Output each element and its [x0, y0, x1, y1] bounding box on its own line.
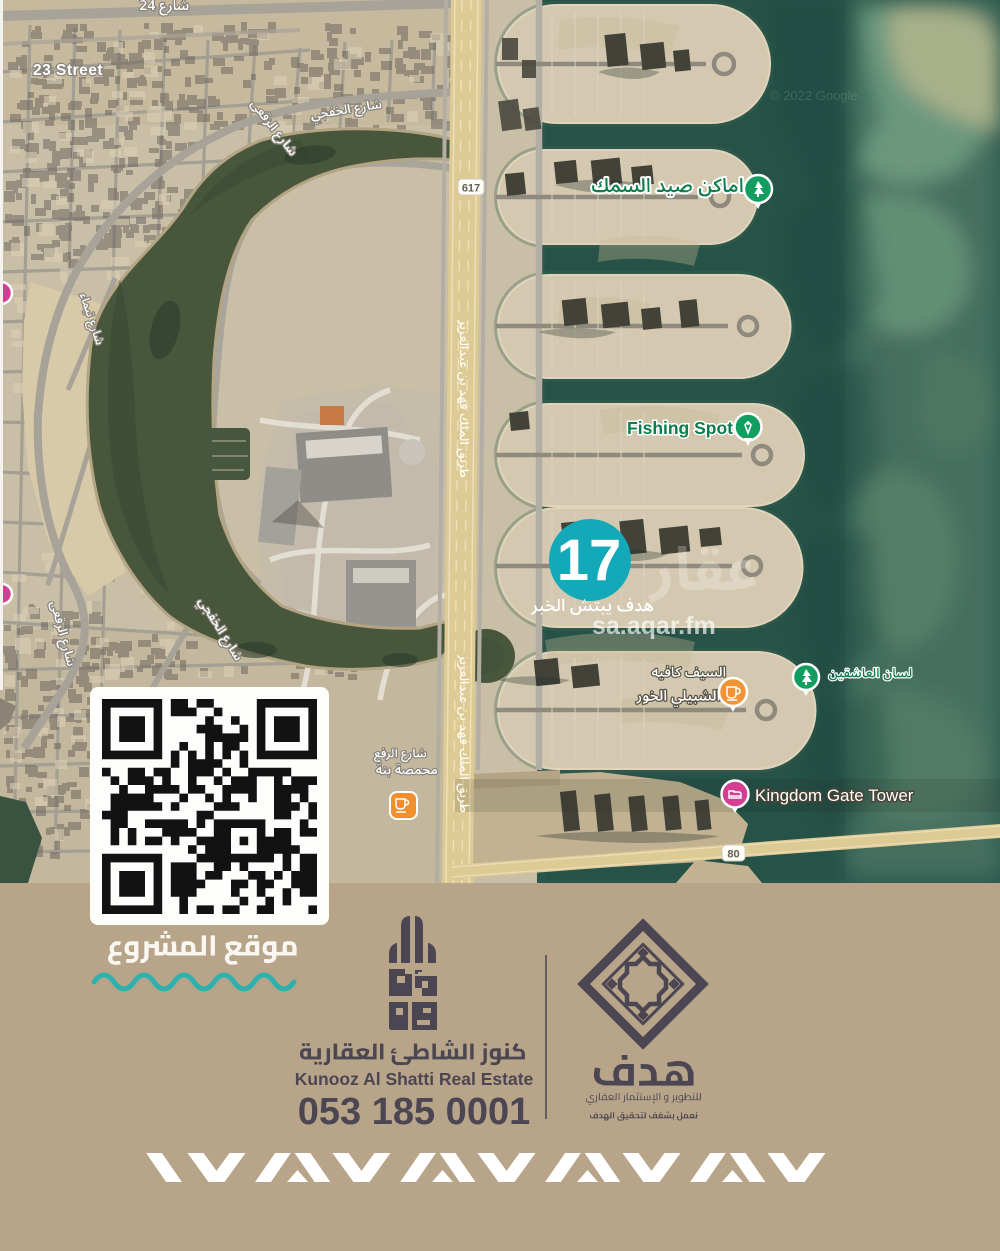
- svg-text:© 2022 Google: © 2022 Google: [770, 88, 858, 103]
- svg-text:Kingdom Gate Tower: Kingdom Gate Tower: [755, 786, 914, 805]
- svg-text:617: 617: [462, 183, 480, 195]
- svg-text:17: 17: [557, 528, 622, 593]
- svg-text:053 185 0001: 053 185 0001: [298, 1091, 530, 1133]
- svg-text:80: 80: [727, 849, 739, 861]
- svg-text:23 Street: 23 Street: [33, 62, 103, 79]
- svg-text:© 2022 Google: © 2022 Google: [545, 649, 626, 663]
- svg-text:Kunooz Al Shatti Real Estate: Kunooz Al Shatti Real Estate: [295, 1069, 534, 1089]
- svg-text:Fishing Spot: Fishing Spot: [627, 418, 733, 438]
- svg-text:sa.aqar.fm: sa.aqar.fm: [592, 612, 716, 640]
